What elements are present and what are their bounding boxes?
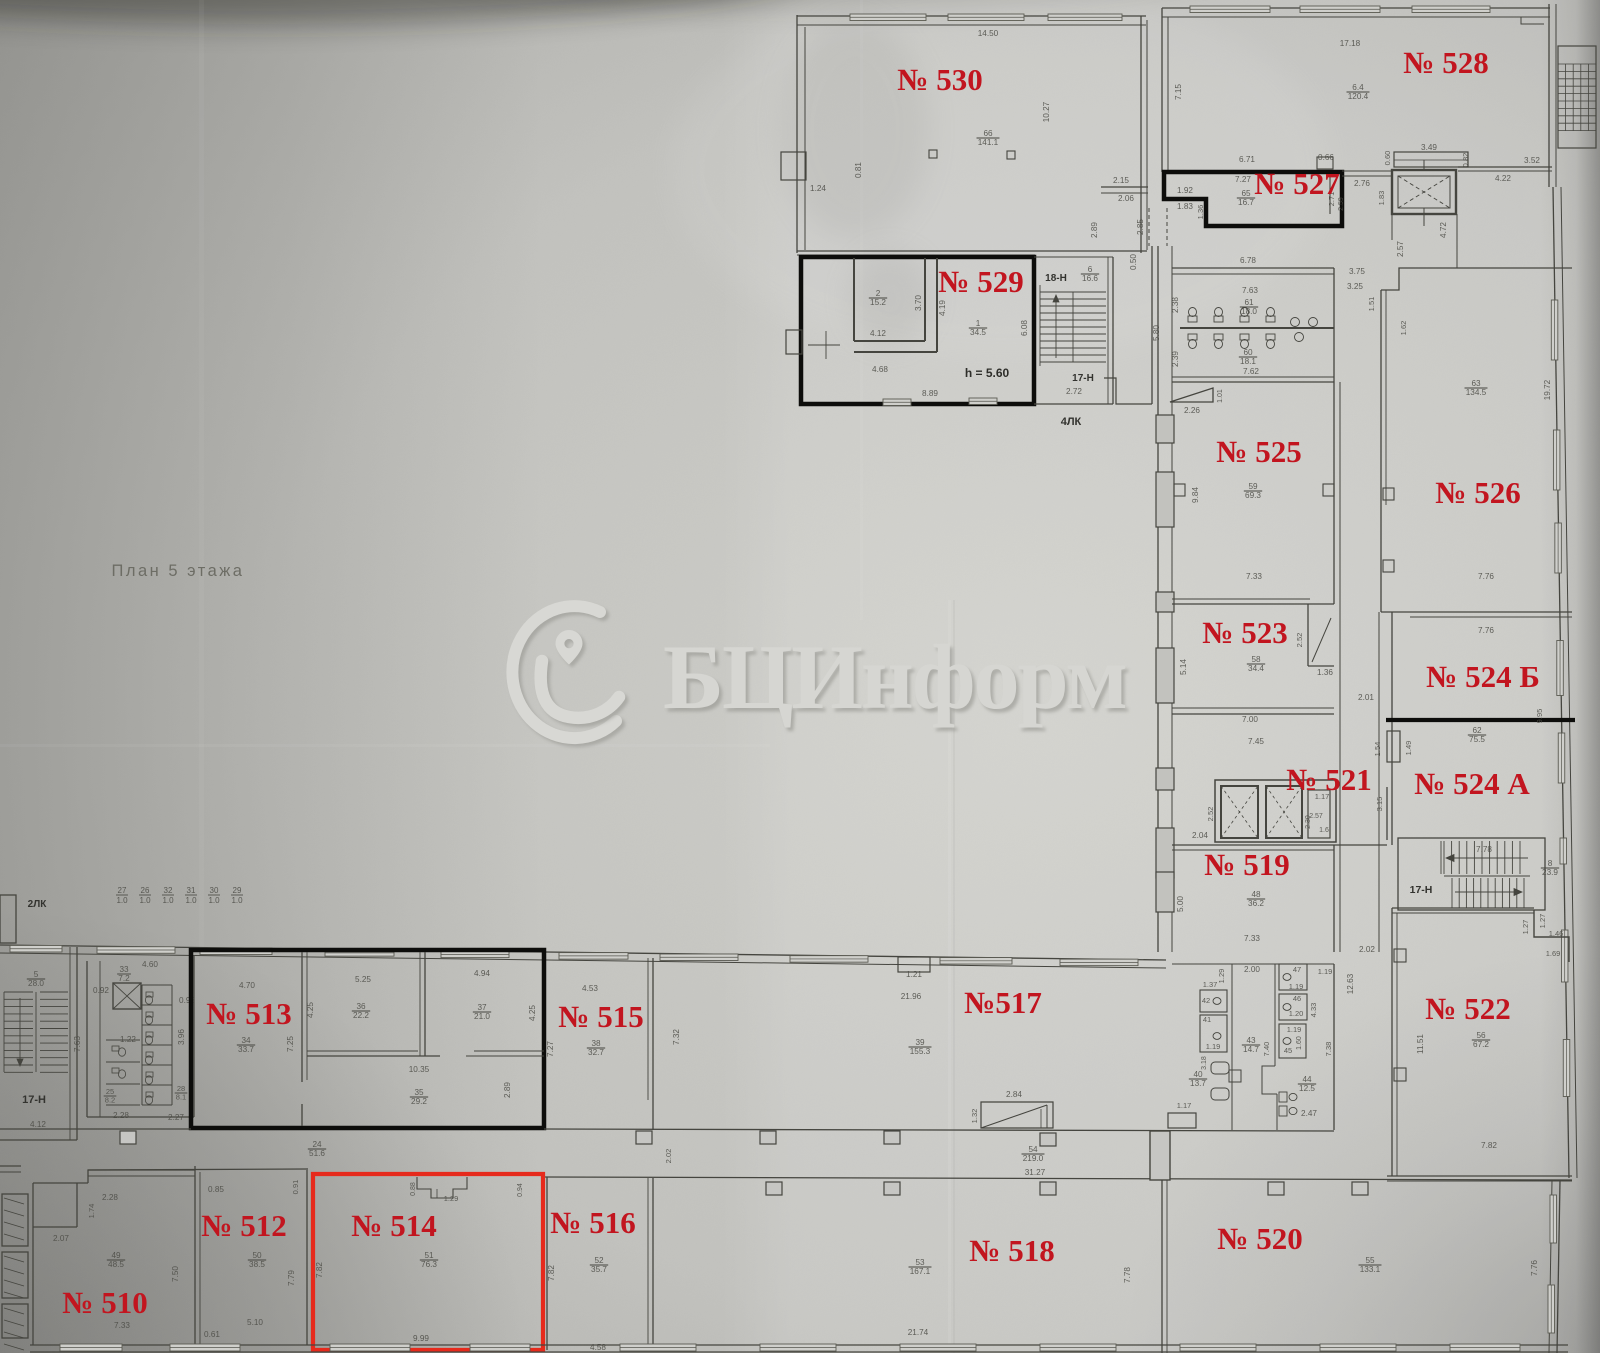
svg-text:6: 6 [1088,265,1093,274]
svg-text:46: 46 [1293,994,1301,1003]
svg-text:4.94: 4.94 [474,969,490,978]
svg-text:1.74: 1.74 [87,1204,96,1219]
svg-text:4.19: 4.19 [938,300,947,316]
svg-text:2.26: 2.26 [1184,406,1200,415]
svg-text:1.19: 1.19 [1289,982,1304,991]
svg-text:31.27: 31.27 [1025,1168,1046,1177]
svg-text:3.70: 3.70 [914,295,923,311]
svg-text:18.0: 18.0 [1241,307,1257,316]
svg-text:59: 59 [1248,482,1258,491]
svg-text:2.02: 2.02 [1359,945,1375,954]
svg-text:2.89: 2.89 [503,1082,512,1098]
svg-text:2.07: 2.07 [53,1234,69,1243]
svg-text:1.36: 1.36 [1317,668,1333,677]
svg-text:4.70: 4.70 [239,981,255,990]
svg-text:62: 62 [1472,726,1482,735]
svg-text:7.82: 7.82 [547,1265,556,1281]
svg-text:1.36: 1.36 [1196,205,1205,220]
svg-text:36.2: 36.2 [1248,899,1264,908]
svg-text:7.45: 7.45 [1248,737,1264,746]
svg-text:7.2: 7.2 [118,974,130,983]
svg-text:1.27: 1.27 [1538,914,1547,929]
svg-text:2.04: 2.04 [1192,831,1208,840]
svg-text:12.5: 12.5 [1299,1084,1315,1093]
svg-text:8.2: 8.2 [105,1096,115,1105]
svg-text:№ 527: № 527 [1254,166,1339,201]
svg-text:26: 26 [141,886,150,895]
svg-text:4.33: 4.33 [1309,1003,1318,1018]
svg-text:47: 47 [1293,965,1301,974]
svg-text:4ЛК: 4ЛК [1061,416,1082,428]
svg-text:7.63: 7.63 [1242,286,1258,295]
svg-text:49: 49 [111,1251,121,1260]
svg-text:6.4: 6.4 [1352,83,1364,92]
svg-text:14.50: 14.50 [978,29,999,38]
svg-text:2.85: 2.85 [1136,219,1145,235]
svg-text:1.19: 1.19 [1206,1042,1221,1051]
svg-text:4.12: 4.12 [30,1120,46,1129]
svg-text:21.0: 21.0 [474,1012,490,1021]
svg-text:7.25: 7.25 [286,1036,295,1052]
svg-text:№ 521: № 521 [1286,762,1371,797]
svg-text:1.29: 1.29 [444,1194,459,1203]
svg-text:5.00: 5.00 [1176,896,1185,912]
svg-text:56: 56 [1476,1031,1486,1040]
svg-text:0.60: 0.60 [1383,151,1392,166]
svg-text:2.39: 2.39 [1171,351,1180,367]
svg-text:5.80: 5.80 [1152,325,1161,341]
svg-text:8.1: 8.1 [176,1093,186,1102]
svg-text:53: 53 [915,1258,925,1267]
svg-text:№ 513: № 513 [206,996,291,1031]
svg-text:№ 528: № 528 [1403,45,1488,80]
svg-text:7.27: 7.27 [1235,175,1251,184]
svg-text:№ 523: № 523 [1202,615,1287,650]
svg-text:22.2: 22.2 [353,1011,369,1020]
svg-text:11.51: 11.51 [1416,1034,1425,1054]
svg-text:4.25: 4.25 [306,1002,315,1018]
svg-text:21.96: 21.96 [901,992,922,1001]
svg-text:1.0: 1.0 [208,896,220,905]
svg-text:2.84: 2.84 [1006,1090,1022,1099]
svg-text:3.96: 3.96 [177,1029,186,1045]
svg-text:4.53: 4.53 [582,984,598,993]
svg-text:№ 526: № 526 [1435,475,1520,510]
svg-text:2.00: 2.00 [1244,965,1260,974]
svg-text:2.76: 2.76 [1354,179,1370,188]
svg-text:№ 518: № 518 [969,1233,1054,1268]
svg-text:65: 65 [1241,189,1251,198]
svg-text:58: 58 [1251,655,1261,664]
svg-text:63: 63 [1471,379,1481,388]
svg-text:4.60: 4.60 [142,960,158,969]
svg-text:7.27: 7.27 [546,1041,555,1057]
svg-text:№ 516: № 516 [550,1205,635,1240]
svg-text:14.7: 14.7 [1243,1045,1259,1054]
svg-text:№ 510: № 510 [62,1285,147,1320]
svg-text:141.1: 141.1 [978,138,999,147]
svg-text:13.7: 13.7 [1190,1079,1206,1088]
svg-text:1.21: 1.21 [906,970,922,979]
svg-text:№ 512: № 512 [201,1208,286,1243]
svg-text:3.49: 3.49 [1421,143,1437,152]
svg-text:9.99: 9.99 [413,1334,429,1343]
svg-text:9.84: 9.84 [1191,487,1200,503]
svg-text:60: 60 [1243,348,1253,357]
svg-text:7.76: 7.76 [1530,1260,1539,1276]
svg-text:1.22: 1.22 [120,1035,136,1044]
svg-text:5.10: 5.10 [247,1318,263,1327]
svg-text:3.18: 3.18 [1201,1056,1208,1070]
svg-text:1.62: 1.62 [1399,321,1408,336]
svg-text:1.37: 1.37 [1203,980,1218,989]
svg-text:7.33: 7.33 [114,1321,130,1330]
svg-text:155.3: 155.3 [910,1047,931,1056]
svg-text:1.51: 1.51 [1367,297,1376,312]
svg-text:35: 35 [414,1088,424,1097]
svg-text:0.94: 0.94 [517,1183,524,1197]
svg-text:2.30: 2.30 [1305,815,1312,829]
svg-text:2.02: 2.02 [664,1149,673,1164]
svg-text:17.18: 17.18 [1340,39,1361,48]
svg-text:7.76: 7.76 [1478,626,1494,635]
svg-text:33.7: 33.7 [238,1045,254,1054]
svg-text:23.9: 23.9 [1542,868,1558,877]
svg-text:1.60: 1.60 [1296,1036,1303,1050]
svg-text:№ 514: № 514 [351,1208,436,1243]
svg-text:37: 37 [477,1003,487,1012]
svg-text:4.72: 4.72 [1439,222,1448,238]
svg-text:0.92: 0.92 [93,986,109,995]
svg-text:2.52: 2.52 [1295,633,1304,648]
svg-text:2.52: 2.52 [1206,807,1215,822]
svg-text:7.63: 7.63 [73,1036,82,1052]
svg-text:29: 29 [233,886,242,895]
svg-text:7.78: 7.78 [1123,1267,1132,1283]
svg-text:7.33: 7.33 [1246,572,1262,581]
svg-text:21.74: 21.74 [908,1328,929,1337]
svg-text:0.61: 0.61 [204,1330,220,1339]
svg-text:134.5: 134.5 [1466,388,1487,397]
svg-text:44: 44 [1302,1075,1312,1084]
svg-text:42: 42 [1202,996,1210,1005]
svg-text:2.06: 2.06 [1118,194,1134,203]
svg-text:55: 55 [1365,1256,1375,1265]
svg-text:28.0: 28.0 [28,979,44,988]
svg-text:1.20: 1.20 [1289,1009,1304,1018]
svg-text:7.32: 7.32 [672,1029,681,1045]
svg-text:43: 43 [1246,1036,1256,1045]
svg-text:1.69: 1.69 [1546,949,1561,958]
svg-text:45: 45 [1284,1046,1292,1055]
svg-text:76.3: 76.3 [421,1260,437,1269]
svg-text:План 5 этажа: План 5 этажа [112,562,245,580]
svg-text:1.29: 1.29 [1217,969,1226,984]
svg-text:2.38: 2.38 [1171,297,1180,313]
svg-text:16.7: 16.7 [1238,198,1254,207]
svg-text:30: 30 [210,886,219,895]
svg-text:1.0: 1.0 [231,896,243,905]
svg-text:№ 525: № 525 [1216,434,1301,469]
svg-text:48.5: 48.5 [108,1260,124,1269]
svg-text:32: 32 [164,886,173,895]
svg-text:7.33: 7.33 [1244,934,1260,943]
svg-text:1.27: 1.27 [1521,920,1530,935]
svg-text:1.01: 1.01 [1217,389,1224,403]
svg-text:34: 34 [241,1036,251,1045]
svg-text:36: 36 [356,1002,366,1011]
svg-text:7.40: 7.40 [1262,1042,1271,1057]
svg-text:1.24: 1.24 [810,184,826,193]
svg-text:4.25: 4.25 [528,1005,537,1021]
svg-text:15.2: 15.2 [870,298,886,307]
svg-text:7.50: 7.50 [171,1266,180,1282]
svg-text:24: 24 [312,1140,322,1149]
svg-text:10.35: 10.35 [409,1065,430,1074]
svg-text:7.76: 7.76 [1478,572,1494,581]
svg-text:№ 530: № 530 [897,62,982,97]
svg-text:167.1: 167.1 [910,1267,931,1276]
svg-text:4.12: 4.12 [870,329,886,338]
svg-text:2.27: 2.27 [168,1113,184,1122]
svg-text:№ 520: № 520 [1217,1221,1302,1256]
svg-text:34.5: 34.5 [970,328,986,337]
svg-text:50: 50 [252,1251,262,1260]
svg-text:1.49: 1.49 [1404,741,1413,756]
svg-text:75.5: 75.5 [1469,735,1485,744]
svg-text:2.28: 2.28 [102,1193,118,1202]
svg-text:40: 40 [1193,1070,1203,1079]
svg-text:39: 39 [915,1038,925,1047]
svg-text:1.83: 1.83 [1377,191,1386,206]
svg-text:6.78: 6.78 [1240,256,1256,265]
svg-text:51.6: 51.6 [309,1149,325,1158]
svg-text:16.6: 16.6 [1082,274,1098,283]
svg-text:27: 27 [118,886,127,895]
svg-text:69.3: 69.3 [1245,491,1261,500]
svg-text:БЦИнформ: БЦИнформ [663,626,1128,728]
svg-text:17-Н: 17-Н [1410,884,1433,896]
svg-text:3.25: 3.25 [1347,282,1363,291]
svg-text:33: 33 [119,965,129,974]
svg-text:7.79: 7.79 [287,1270,296,1286]
svg-text:41: 41 [1203,1015,1211,1024]
svg-text:32.7: 32.7 [588,1048,604,1057]
svg-text:2.89: 2.89 [1090,222,1099,238]
svg-text:29.2: 29.2 [411,1097,427,1106]
svg-text:4.68: 4.68 [872,365,888,374]
svg-text:7.82: 7.82 [1481,1141,1497,1150]
svg-text:№ 529: № 529 [938,264,1023,299]
svg-text:0.88: 0.88 [410,1182,417,1196]
svg-text:17-Н: 17-Н [22,1094,46,1106]
svg-text:4.22: 4.22 [1495,174,1511,183]
svg-text:0.91: 0.91 [291,1180,300,1195]
svg-text:1: 1 [976,319,981,328]
svg-text:2.47: 2.47 [1301,1109,1317,1118]
svg-text:1.54: 1.54 [1373,742,1382,757]
svg-text:18.1: 18.1 [1240,357,1256,366]
svg-text:219.0: 219.0 [1023,1154,1044,1163]
svg-text:№ 522: № 522 [1425,991,1510,1026]
svg-text:52: 52 [594,1256,604,1265]
svg-text:0.85: 0.85 [208,1185,224,1194]
svg-text:51: 51 [424,1251,434,1260]
svg-text:№ 524 Б: № 524 Б [1426,659,1540,694]
svg-text:2.01: 2.01 [1358,693,1374,702]
svg-text:7.38: 7.38 [1324,1042,1333,1057]
svg-text:67.2: 67.2 [1473,1040,1489,1049]
svg-text:35.7: 35.7 [591,1265,607,1274]
svg-text:1.32: 1.32 [970,1109,979,1124]
svg-text:№ 524 А: № 524 А [1414,766,1530,801]
svg-text:6.71: 6.71 [1239,155,1255,164]
svg-text:5.25: 5.25 [355,975,371,984]
svg-text:7.62: 7.62 [1243,367,1259,376]
svg-text:№ 519: № 519 [1204,847,1289,882]
svg-text:1.83: 1.83 [1177,202,1193,211]
svg-text:66: 66 [983,129,993,138]
svg-text:7.82: 7.82 [315,1262,324,1278]
svg-text:120.4: 120.4 [1348,92,1369,101]
svg-text:2.57: 2.57 [1396,241,1405,257]
svg-text:1.0: 1.0 [162,896,174,905]
svg-text:2.72: 2.72 [1066,387,1082,396]
svg-text:0.81: 0.81 [854,162,863,178]
svg-text:№517: №517 [964,985,1042,1020]
svg-text:1.6: 1.6 [1319,827,1329,834]
svg-text:1.19: 1.19 [1287,1025,1302,1034]
svg-text:8: 8 [1548,859,1553,868]
svg-text:133.1: 133.1 [1360,1265,1381,1274]
svg-text:54: 54 [1028,1145,1038,1154]
svg-text:1.46: 1.46 [1549,929,1564,938]
svg-text:2ЛК: 2ЛК [28,899,48,910]
svg-text:2: 2 [876,289,881,298]
svg-text:№ 515: № 515 [558,999,643,1034]
svg-text:61: 61 [1244,298,1254,307]
svg-text:1.17: 1.17 [1177,1101,1192,1110]
svg-text:1.0: 1.0 [185,896,197,905]
svg-text:6.08: 6.08 [1020,320,1029,336]
svg-text:5: 5 [34,970,39,979]
svg-text:1.19: 1.19 [1318,967,1333,976]
svg-text:38: 38 [591,1039,601,1048]
svg-text:7.00: 7.00 [1242,715,1258,724]
svg-text:34.4: 34.4 [1248,664,1264,673]
svg-text:12.63: 12.63 [1346,973,1355,994]
svg-text:31: 31 [187,886,196,895]
svg-text:3.52: 3.52 [1524,156,1540,165]
svg-text:5.14: 5.14 [1179,659,1188,675]
svg-text:7.15: 7.15 [1174,84,1183,100]
svg-text:9.95: 9.95 [1535,709,1544,724]
svg-text:18-Н: 18-Н [1045,273,1067,284]
svg-text:2.15: 2.15 [1113,176,1129,185]
svg-text:2.28: 2.28 [113,1111,129,1120]
svg-text:19.72: 19.72 [1543,379,1552,400]
svg-text:7.78: 7.78 [1476,845,1492,854]
svg-text:10.27: 10.27 [1042,101,1051,122]
svg-text:1.0: 1.0 [139,896,151,905]
svg-text:3.75: 3.75 [1349,267,1365,276]
svg-text:1.0: 1.0 [116,896,128,905]
svg-text:48: 48 [1251,890,1261,899]
svg-text:8.89: 8.89 [922,389,938,398]
svg-text:h = 5.60: h = 5.60 [965,366,1010,380]
svg-text:17-Н: 17-Н [1072,373,1094,384]
svg-text:1.92: 1.92 [1177,186,1193,195]
svg-text:0.50: 0.50 [1129,254,1138,270]
svg-text:38.5: 38.5 [249,1260,265,1269]
